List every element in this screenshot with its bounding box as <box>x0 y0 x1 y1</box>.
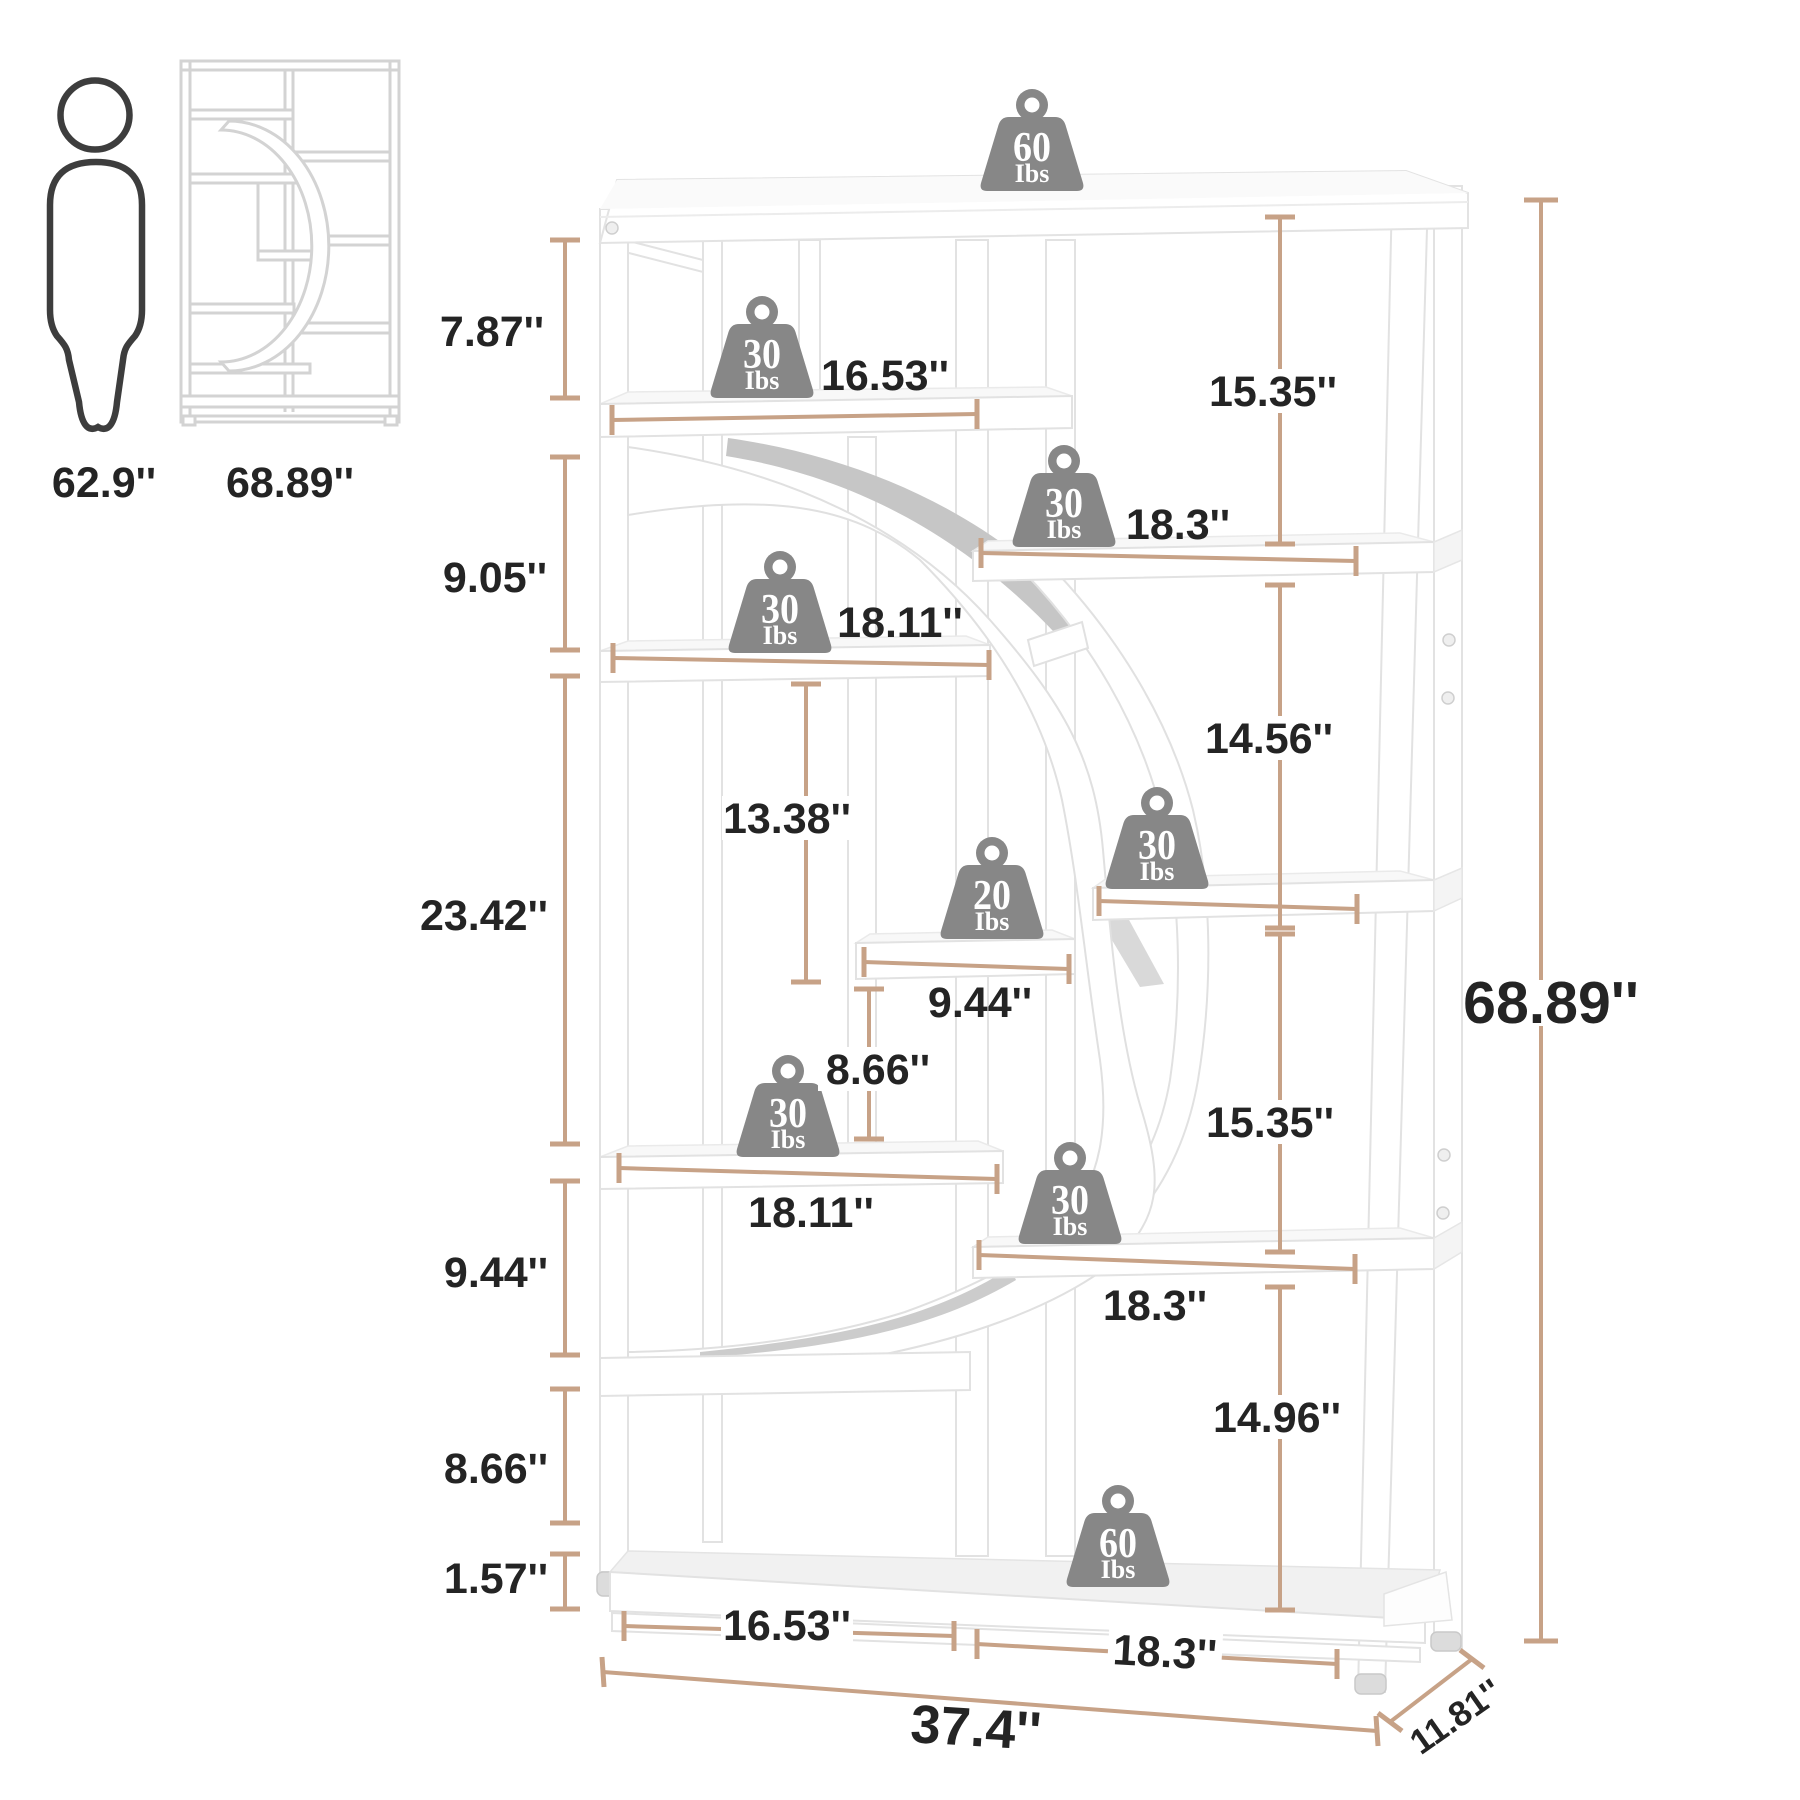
svg-text:18.11'': 18.11'' <box>837 599 963 647</box>
svg-text:14.56'': 14.56'' <box>1205 715 1333 763</box>
svg-text:Ibs: Ibs <box>763 621 798 650</box>
svg-text:11.81'': 11.81'' <box>1403 1672 1509 1763</box>
svg-text:Ibs: Ibs <box>1140 857 1175 886</box>
svg-text:Ibs: Ibs <box>975 907 1010 936</box>
svg-text:16.53'': 16.53'' <box>723 1602 851 1650</box>
svg-text:18.3'': 18.3'' <box>1112 1626 1219 1680</box>
svg-text:Ibs: Ibs <box>771 1125 806 1154</box>
svg-text:1.57'': 1.57'' <box>444 1555 548 1603</box>
svg-text:18.3'': 18.3'' <box>1126 501 1230 549</box>
svg-text:Ibs: Ibs <box>745 366 780 395</box>
svg-text:68.89'': 68.89'' <box>1463 970 1639 1036</box>
svg-text:18.11'': 18.11'' <box>748 1189 874 1237</box>
svg-text:9.05'': 9.05'' <box>443 554 547 602</box>
svg-text:8.66'': 8.66'' <box>826 1046 930 1094</box>
svg-text:Ibs: Ibs <box>1101 1555 1136 1584</box>
svg-text:Ibs: Ibs <box>1047 515 1082 544</box>
svg-text:68.89'': 68.89'' <box>226 459 354 507</box>
svg-text:37.4'': 37.4'' <box>909 1694 1043 1762</box>
svg-text:16.53'': 16.53'' <box>821 352 949 400</box>
svg-text:14.96'': 14.96'' <box>1213 1394 1341 1442</box>
svg-text:7.87'': 7.87'' <box>440 308 544 356</box>
svg-text:18.3'': 18.3'' <box>1103 1282 1207 1330</box>
svg-text:Ibs: Ibs <box>1053 1212 1088 1241</box>
svg-text:Ibs: Ibs <box>1015 159 1050 188</box>
svg-text:15.35'': 15.35'' <box>1209 368 1337 416</box>
svg-text:62.9'': 62.9'' <box>52 459 156 507</box>
svg-text:15.35'': 15.35'' <box>1206 1099 1334 1147</box>
svg-text:13.38'': 13.38'' <box>723 795 851 843</box>
svg-text:9.44'': 9.44'' <box>928 979 1032 1027</box>
svg-text:23.42'': 23.42'' <box>420 892 548 940</box>
svg-text:9.44'': 9.44'' <box>444 1249 548 1297</box>
svg-text:8.66'': 8.66'' <box>444 1445 548 1493</box>
